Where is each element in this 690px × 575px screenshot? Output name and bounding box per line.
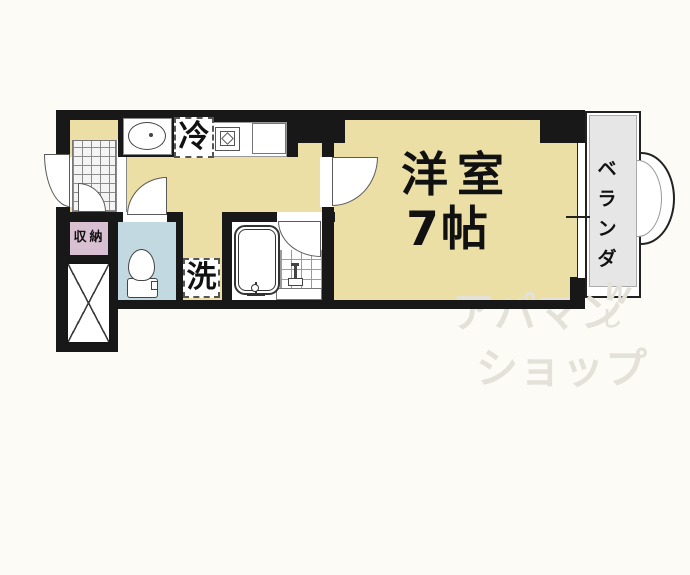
pipe-space-cross-box: [66, 262, 111, 344]
washstand-stem-icon: [294, 266, 297, 279]
watermark-line2: ショップ: [476, 348, 648, 390]
tub-drain-icon: [251, 284, 259, 292]
tub-faucet-base: [247, 293, 265, 296]
balcony-label-char-2: ラ: [597, 184, 616, 214]
washer-space: 洗: [183, 258, 220, 298]
toilet-handle-icon: [151, 281, 158, 290]
window-strip: [577, 143, 586, 278]
kitchen-sink-basin-icon: [128, 122, 166, 150]
wall-top-main: [345, 110, 540, 120]
floorplan-canvas: アパマン ショップ W し 冷 洗: [0, 0, 690, 575]
watermark-line1: アパマン: [452, 292, 623, 334]
washer-label: 洗: [187, 263, 217, 293]
wall-toilet-right: [176, 220, 183, 300]
sink-drain-icon: [149, 133, 153, 137]
watermark-accent-w: W: [601, 279, 633, 309]
balcony-label-char-4: ダ: [597, 244, 616, 274]
toilet-bowl-icon: [128, 249, 155, 281]
wall-top-right-pillar: [540, 110, 585, 143]
balcony-label-char-3: ン: [597, 214, 616, 244]
wall-right-pillar-bottom: [570, 277, 585, 300]
main-room-label: 洋室: [357, 152, 557, 199]
wall-bottom: [108, 300, 585, 309]
wall-center-pillar: [298, 110, 345, 143]
main-room-size-label: 7帖: [348, 206, 548, 253]
wall-column-bottom: [56, 343, 118, 352]
refrigerator-space: 冷: [174, 117, 214, 158]
window-latch-mark: [566, 216, 590, 218]
washstand-base-icon: [288, 278, 303, 286]
bathroom-ledge: [276, 288, 322, 300]
wall-bath-left: [222, 222, 232, 300]
washstand-spout-icon: [291, 263, 299, 266]
balcony-label: ベ ラ ン ダ: [595, 154, 619, 274]
storage-label: 収納: [70, 231, 109, 244]
counter-top: [252, 123, 286, 154]
bathtub-inner-line: [238, 229, 276, 291]
refrigerator-label: 冷: [179, 122, 210, 153]
entrance-door-swing: [44, 154, 70, 207]
balcony-label-char-1: ベ: [597, 154, 616, 184]
watermark-accent-shi: し: [601, 309, 622, 330]
